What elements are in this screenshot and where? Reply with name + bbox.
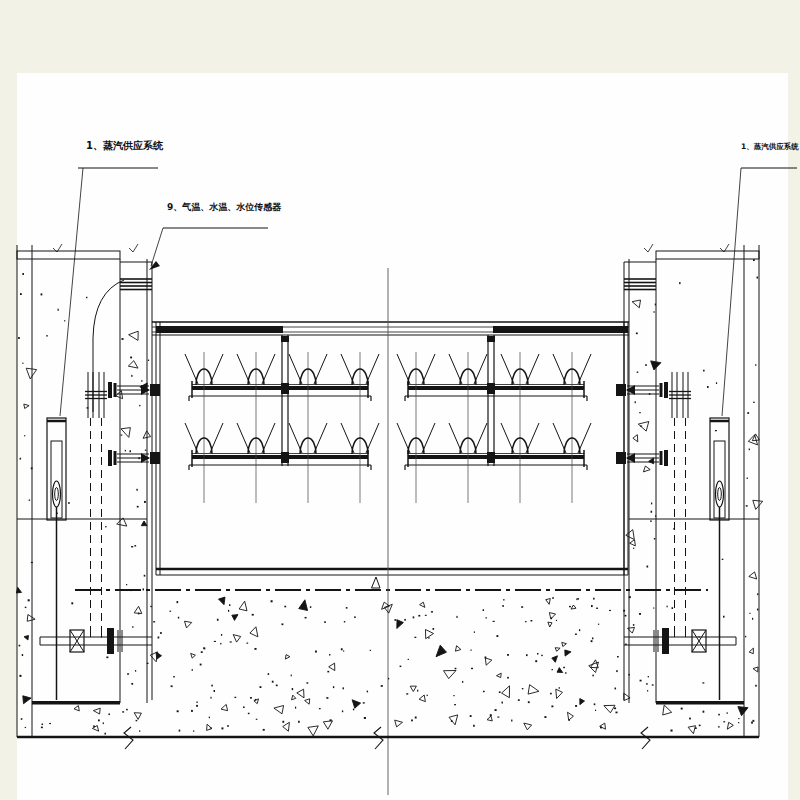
label-sensors: 9、气温、水温、水位传感器 [167, 202, 282, 212]
engineering-drawing: 1、蒸汽供应系统 9、气温、水温、水位传感器 1、蒸汽供应系统 [0, 0, 800, 800]
pipe-elbow [281, 452, 289, 463]
pipe-elbow [487, 383, 495, 394]
steam-header-right [493, 326, 628, 333]
pipe-elbow [487, 452, 495, 463]
drawing-canvas: 1、蒸汽供应系统 9、气温、水温、水位传感器 1、蒸汽供应系统 [0, 0, 800, 800]
pipe-elbow [281, 336, 289, 342]
steam-header-left [156, 326, 283, 333]
pipe-elbow [487, 336, 495, 342]
pipe-elbow [281, 383, 289, 394]
label-steam-supply-right: 1、蒸汽供应系统 [741, 142, 799, 151]
label-steam-supply-left: 1、蒸汽供应系统 [86, 140, 164, 151]
